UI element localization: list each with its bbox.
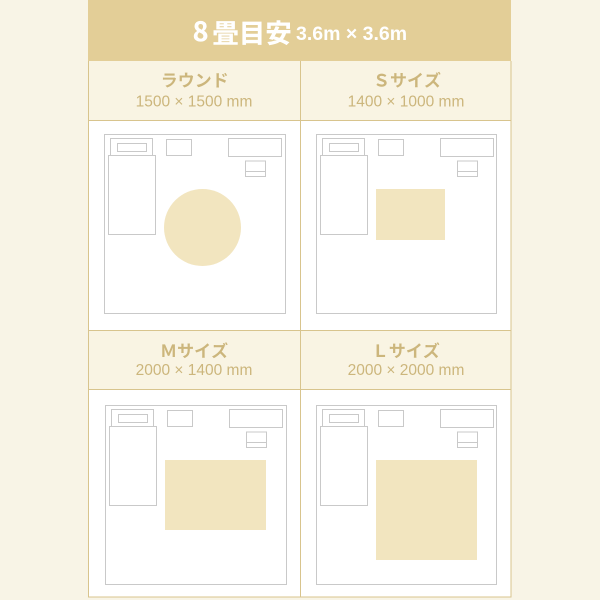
svg-text:1500 × 1500 mm: 1500 × 1500 mm (136, 94, 253, 111)
svg-text:2000 × 2000 mm: 2000 × 2000 mm (348, 362, 465, 379)
svg-text:1400 × 1000 mm: 1400 × 1000 mm (348, 94, 465, 111)
svg-text:3.6m × 3.6m: 3.6m × 3.6m (296, 23, 407, 45)
svg-text:2000 × 1400 mm: 2000 × 1400 mm (136, 362, 253, 379)
